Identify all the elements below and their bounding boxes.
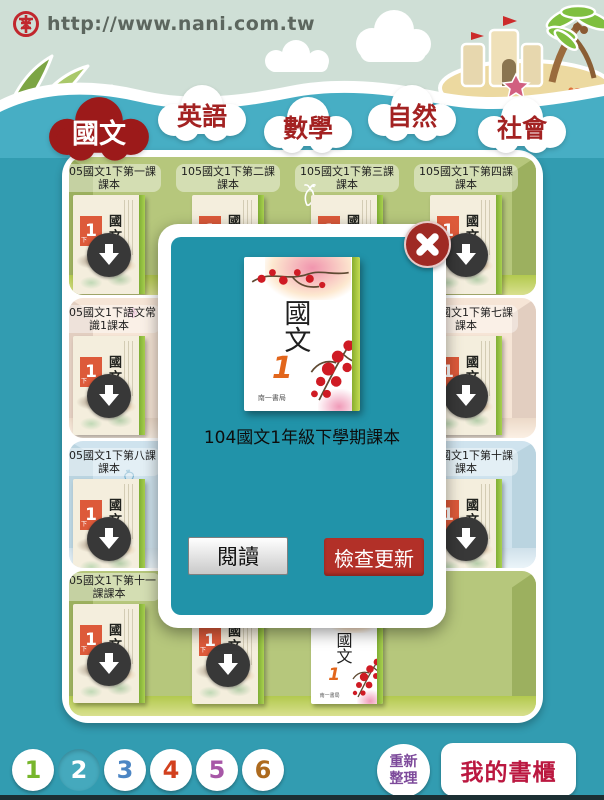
book-slot[interactable]: 105國文1下第一課 課本 下1 國文 (69, 164, 163, 294)
page-button-3[interactable]: 3 (104, 749, 146, 791)
tab-label: 英語 (150, 84, 254, 142)
dialog-book-cover: 國文 1 南一書局 (244, 257, 360, 411)
book-slot[interactable]: 105國文1下第八課 課本 下1 國文 (69, 448, 163, 568)
download-button[interactable] (87, 233, 131, 277)
bookshelf-app: http://www.nani.com.tw (0, 0, 604, 800)
dialog-panel: 國文 1 南一書局 104國文1年級下學期課本 閱讀 檢查更新 (171, 237, 433, 615)
book-spine (139, 479, 145, 568)
dialog-book-title: 104國文1年級下學期課本 (171, 423, 433, 448)
book-subject: 國文 (275, 299, 314, 353)
book-spine (496, 195, 502, 294)
download-button[interactable] (206, 643, 250, 687)
grade-number: 1 (272, 351, 293, 386)
x-icon (406, 223, 449, 266)
tab-label: 數學 (256, 96, 360, 154)
url-bar: http://www.nani.com.tw (12, 10, 315, 38)
book-label: 105國文1下第十一 課課本 (69, 573, 161, 601)
publisher: 南一書局 (258, 393, 286, 403)
book-detail-dialog: 國文 1 南一書局 104國文1年級下學期課本 閱讀 檢查更新 (158, 224, 446, 628)
book-cover[interactable]: 下1 國文 (73, 479, 145, 568)
shelf-wall (512, 571, 536, 698)
book-spine (352, 257, 360, 411)
book-label: 105國文1下第三課 課本 (295, 164, 399, 192)
book-label: 105國文1下第二課 課本 (176, 164, 280, 192)
book-spine (139, 336, 145, 435)
tab-chinese[interactable]: 國文 (40, 96, 158, 162)
page-button-2[interactable]: 2 (58, 749, 100, 791)
check-update-button[interactable]: 檢查更新 (324, 538, 424, 576)
tab-english[interactable]: 英語 (150, 84, 254, 142)
book-label: 105國文1下第八課 課本 (69, 448, 161, 476)
close-button[interactable] (404, 221, 451, 268)
book-spine (139, 195, 145, 294)
tab-label: 自然 (360, 84, 464, 142)
my-bookshelf-button[interactable]: 我的書櫃 (441, 743, 576, 796)
download-button[interactable] (444, 517, 488, 561)
book-label: 105國文1下第一課 課本 (69, 164, 161, 192)
nani-emblem-icon (12, 10, 40, 38)
tab-science[interactable]: 自然 (360, 84, 464, 142)
page-button-4[interactable]: 4 (150, 749, 192, 791)
read-button[interactable]: 閱讀 (188, 537, 288, 575)
tab-label: 國文 (40, 96, 158, 162)
site-url: http://www.nani.com.tw (47, 13, 315, 35)
refresh-button[interactable]: 重新 整理 (377, 744, 430, 797)
book-spine (496, 336, 502, 435)
book-spine (496, 479, 502, 568)
download-button[interactable] (87, 642, 131, 686)
book-cover[interactable]: 下1 國文 (73, 604, 145, 703)
page-button-5[interactable]: 5 (196, 749, 238, 791)
publisher: 南一書局 (320, 692, 340, 699)
bottom-border (0, 795, 604, 800)
book-label: 105國文1下語文常 識1課本 (69, 305, 161, 333)
tab-social[interactable]: 社會 (470, 96, 574, 154)
grade-number: 1 (328, 665, 340, 685)
book-slot[interactable]: 105國文1下語文常 識1課本 下1 國文 (69, 305, 163, 435)
book-cover[interactable]: 下1 國文 (73, 195, 145, 294)
page-button-6[interactable]: 6 (242, 749, 284, 791)
download-button[interactable] (87, 517, 131, 561)
book-spine (139, 604, 145, 703)
page-button-1[interactable]: 1 (12, 749, 54, 791)
book-label: 105國文1下第四課 課本 (414, 164, 518, 192)
book-cover[interactable]: 下1 國文 (73, 336, 145, 435)
tab-math[interactable]: 數學 (256, 96, 360, 154)
download-button[interactable] (87, 374, 131, 418)
download-button[interactable] (444, 374, 488, 418)
tab-label: 社會 (470, 96, 574, 154)
book-slot[interactable]: 105國文1下第十一 課課本 下1 國文 (69, 573, 163, 703)
book-subject: 國文 (330, 632, 354, 664)
